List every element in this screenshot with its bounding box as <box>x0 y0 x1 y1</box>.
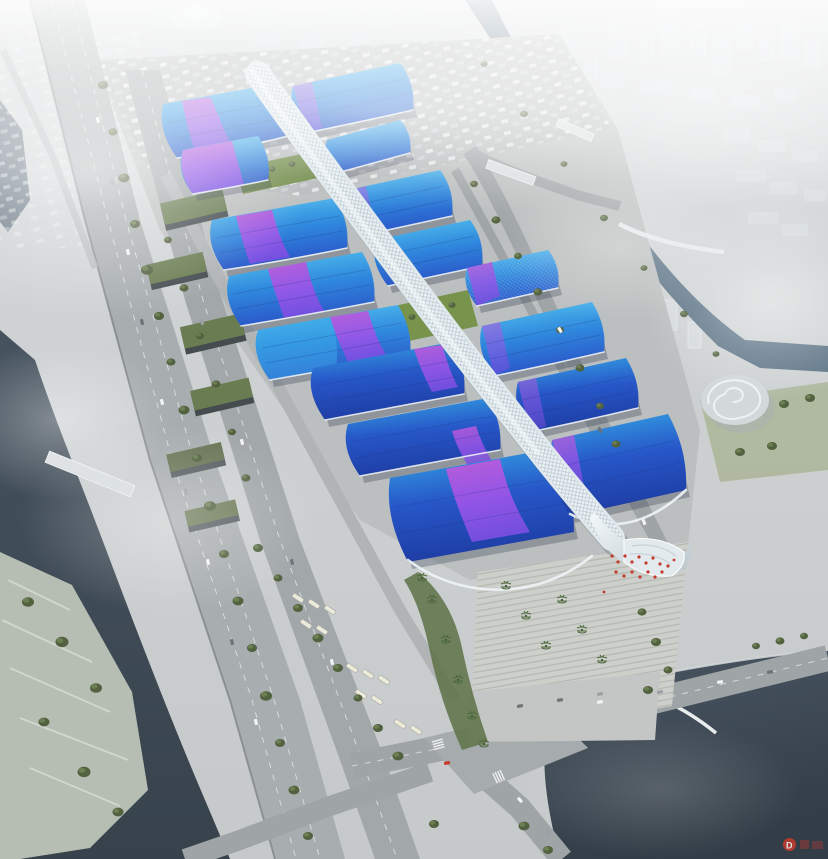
watermark-glyph <box>812 841 823 849</box>
watermark-letter: D <box>786 841 793 851</box>
watermark-glyph <box>800 840 809 849</box>
aerial-rendering: Aerial rendering of a large riverside ex… <box>0 0 828 859</box>
rendering-canvas: Aerial rendering of a large riverside ex… <box>0 0 828 859</box>
